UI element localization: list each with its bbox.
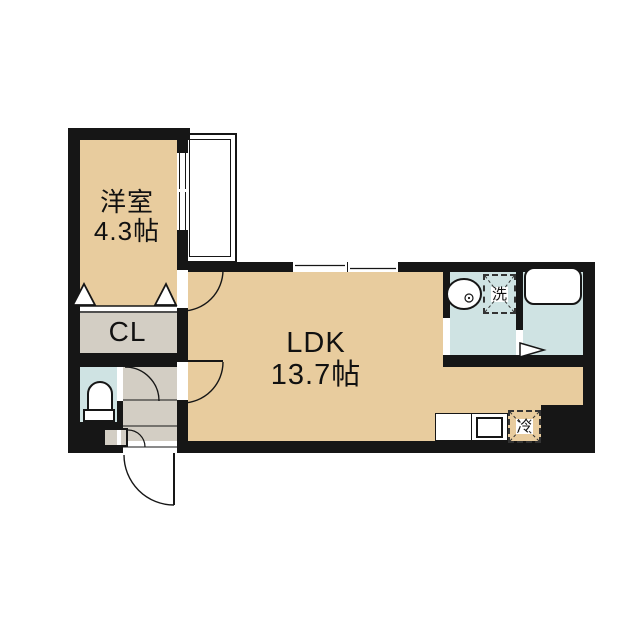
door-arc-western: [182, 270, 223, 311]
ldk-name: LDK: [230, 327, 402, 359]
washer-cross-line: [503, 299, 514, 312]
fridge-cross-line: [529, 431, 539, 441]
room-label-western: 洋室 4.3帖: [68, 188, 186, 246]
bathroom-door-arrow-icon: [520, 343, 544, 357]
closet-name: CL: [95, 316, 160, 347]
western-name: 洋室: [68, 188, 186, 217]
western-size: 4.3帖: [68, 217, 186, 246]
door-arc-entrance: [124, 455, 174, 505]
fridge-cross-line: [510, 431, 519, 441]
door-arc-entrance-step: [128, 430, 145, 447]
washer-cross-line: [485, 299, 496, 312]
fridge-cross-line: [510, 412, 519, 422]
wash-basin-icon: [447, 279, 481, 309]
washer-cross-line: [485, 276, 496, 290]
room-label-ldk: LDK 13.7帖: [230, 327, 402, 392]
door-arc-toilet: [125, 367, 159, 401]
wash-basin-drain-dot: [468, 297, 470, 299]
room-label-closet: CL: [95, 316, 160, 347]
folding-door-icon-right: [155, 284, 176, 305]
washer-cross-line: [503, 276, 514, 290]
door-arc-corridor-ldk: [182, 362, 223, 403]
fridge-cross-line: [529, 412, 539, 422]
folding-door-icon-left: [73, 284, 95, 305]
ldk-size: 13.7帖: [230, 359, 402, 391]
floor-plan: 洗 冷: [0, 0, 640, 640]
